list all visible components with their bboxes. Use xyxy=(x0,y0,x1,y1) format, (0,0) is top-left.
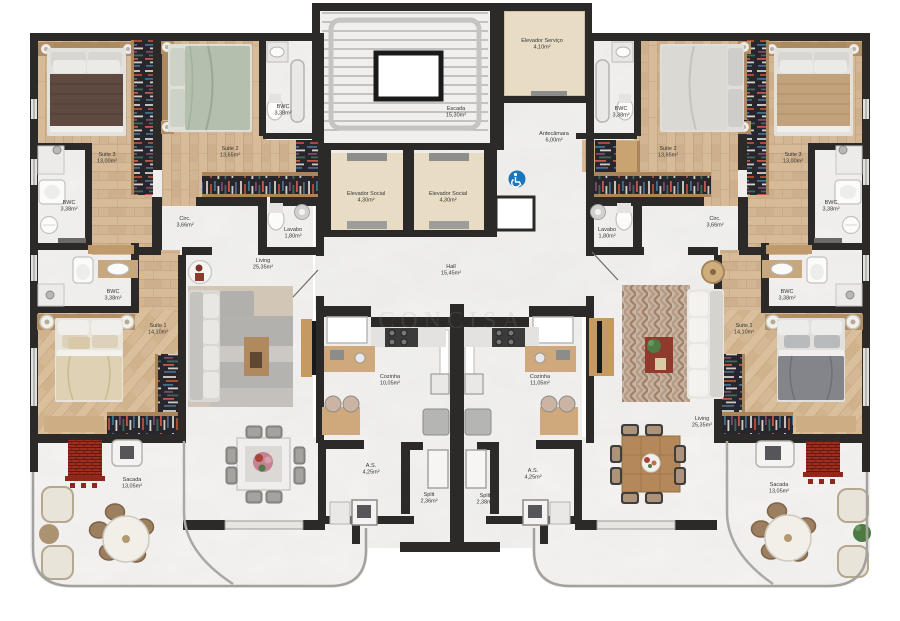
svg-text:BWC3,38m²: BWC3,38m² xyxy=(822,200,839,213)
svg-text:Sacada13,05m²: Sacada13,05m² xyxy=(122,477,142,490)
svg-text:Lavabo1,80m²: Lavabo1,80m² xyxy=(598,227,616,240)
svg-text:Suite 114,10m²: Suite 114,10m² xyxy=(148,323,168,336)
svg-text:Suite 313,00m²: Suite 313,00m² xyxy=(97,152,117,165)
svg-text:CONCISA: CONCISA xyxy=(378,308,525,334)
svg-text:Lavabo1,80m²: Lavabo1,80m² xyxy=(284,227,302,240)
svg-text:Suite 313,00m²: Suite 313,00m² xyxy=(783,152,803,165)
svg-text:Cozinha10,05m²: Cozinha10,05m² xyxy=(380,374,401,387)
svg-text:Suite 114,10m²: Suite 114,10m² xyxy=(734,323,754,336)
svg-text:BWC3,38m²: BWC3,38m² xyxy=(104,289,121,302)
svg-text:Cozinha11,05m²: Cozinha11,05m² xyxy=(530,374,551,387)
svg-text:Sacada13,05m²: Sacada13,05m² xyxy=(769,482,789,495)
svg-text:Escada15,30m²: Escada15,30m² xyxy=(446,106,466,119)
svg-text:BWC3,38m²: BWC3,38m² xyxy=(612,106,629,119)
svg-text:BWC3,38m²: BWC3,38m² xyxy=(778,289,795,302)
svg-text:Suite 213,65m²: Suite 213,65m² xyxy=(658,146,678,159)
svg-text:BWC3,38m²: BWC3,38m² xyxy=(60,200,77,213)
svg-text:Suite 213,65m²: Suite 213,65m² xyxy=(220,146,240,159)
svg-text:BWC3,38m²: BWC3,38m² xyxy=(274,104,291,117)
